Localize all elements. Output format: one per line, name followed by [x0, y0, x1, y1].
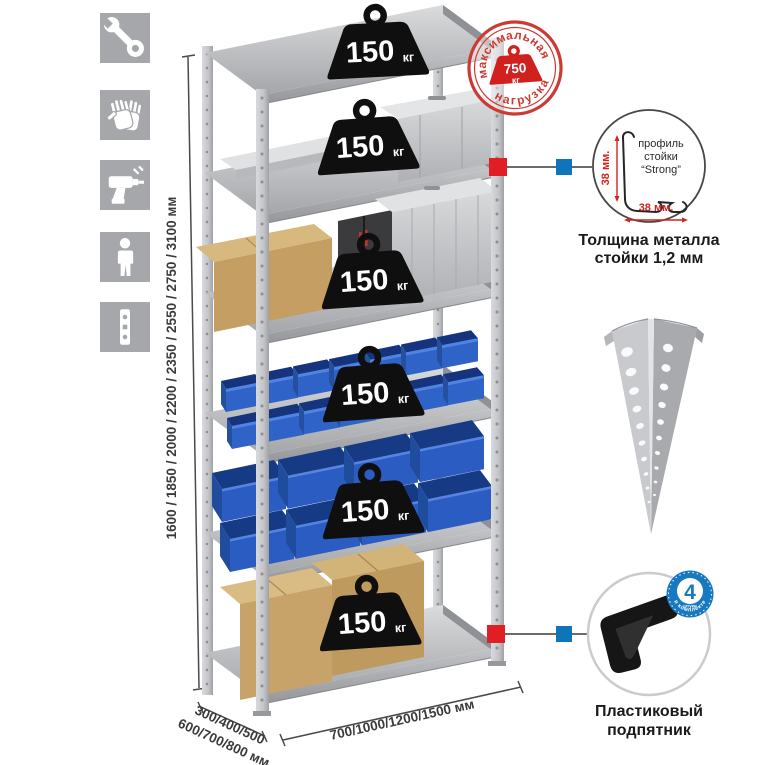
badge-value: 150: [337, 606, 388, 641]
badge-value: 150: [345, 35, 395, 69]
badge-unit: кг: [397, 508, 409, 523]
plastic-foot-caption-line2: подпятник: [607, 722, 692, 739]
blue-marker-bottom: [556, 626, 572, 642]
badge-unit: кг: [402, 50, 414, 65]
profile-label-line2: стойки: [644, 151, 678, 163]
blue-marker-top: [556, 159, 572, 175]
profile-callout-connector: [489, 158, 592, 176]
metal-thickness-caption-line1: Толщина металла: [578, 232, 719, 249]
profile-label-line1: профиль: [638, 138, 684, 150]
badge-unit: кг: [394, 620, 406, 635]
cardboard-box-front: [220, 568, 332, 700]
red-marker-bottom: [487, 625, 505, 643]
badge-value: 150: [339, 264, 390, 299]
profile-dim-horizontal-label: 38 мм.: [639, 202, 674, 214]
badge-value: 150: [340, 494, 391, 529]
foot-callout-connector: [487, 625, 588, 643]
badge-unit: кг: [396, 278, 408, 293]
quantity-badge: 4 штуки в комплекте: [667, 571, 714, 618]
storage-bin: [437, 330, 478, 368]
height-dimension-label: 1600 / 1850 / 2000 / 2200 / 2350 / 2550 …: [164, 197, 179, 540]
rack-post-back-left: [202, 46, 213, 695]
shelving-infographic: 1600 / 1850 / 2000 / 2200 / 2350 / 2550 …: [0, 0, 765, 765]
infographic-scene: 1600 / 1850 / 2000 / 2200 / 2350 / 2550 …: [0, 0, 765, 765]
plastic-foot-detail: 4 штуки в комплекте Пластиковый подпятни…: [588, 571, 714, 740]
height-dimension: 1600 / 1850 / 2000 / 2200 / 2350 / 2550 …: [164, 55, 206, 690]
profile-label-line3: “Strong”: [641, 164, 681, 176]
stamp-weight-unit: кг: [512, 75, 521, 86]
width-dimension-label: 700/1000/1200/1500 мм: [328, 696, 475, 743]
badge-unit: кг: [397, 391, 409, 406]
badge-unit: кг: [392, 144, 404, 159]
profile-detail: 38 мм. 38 мм. профиль стойки “Strong” То…: [578, 110, 719, 267]
red-marker-top: [489, 158, 507, 176]
quantity-badge-number: 4: [684, 581, 696, 604]
corner-post-image: [604, 319, 704, 534]
profile-dim-vertical-label: 38 мм.: [600, 151, 612, 186]
badge-value: 150: [335, 130, 386, 165]
badge-value: 150: [340, 377, 391, 412]
metal-thickness-caption-line2: стойки 1,2 мм: [595, 250, 704, 267]
plastic-foot-caption-line1: Пластиковый: [595, 703, 703, 720]
